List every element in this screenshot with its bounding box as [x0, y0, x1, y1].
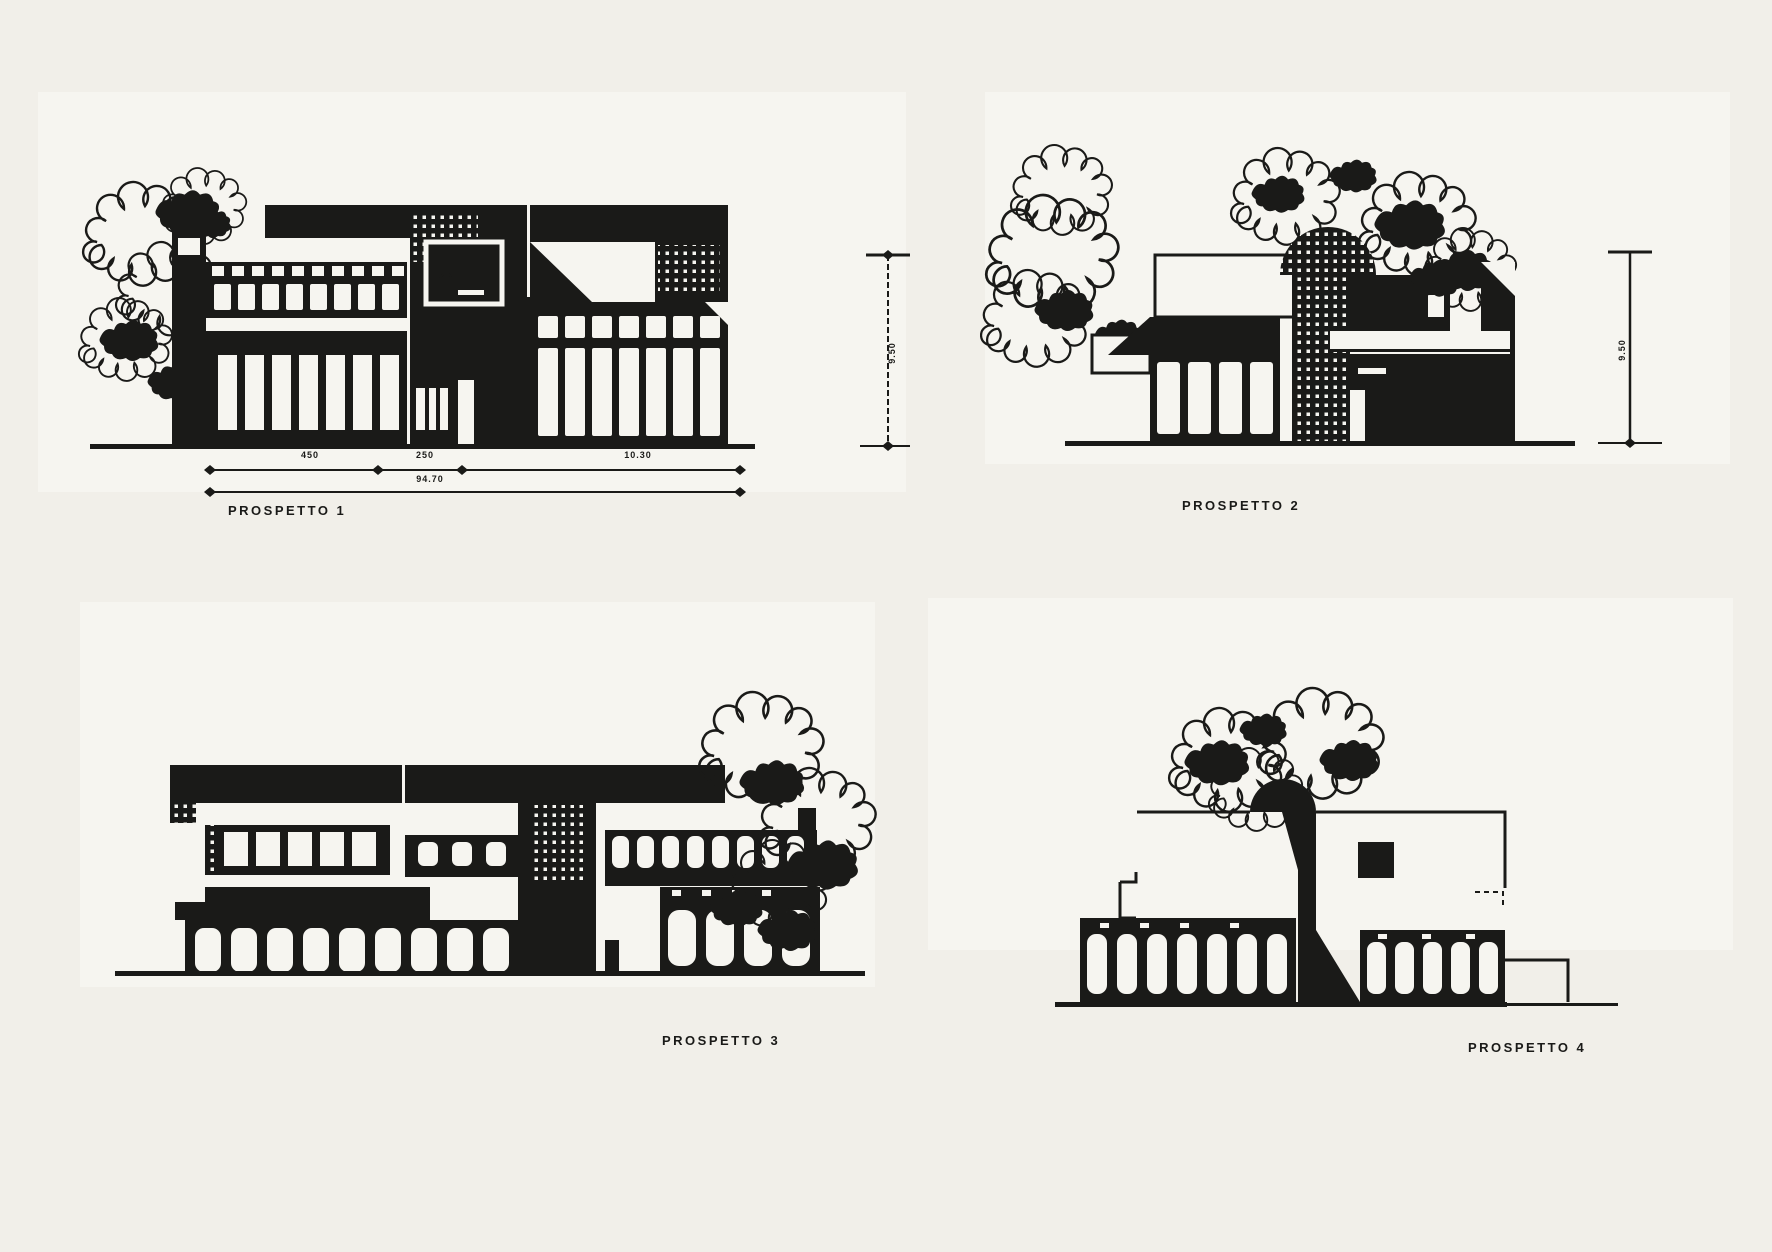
tree — [699, 692, 875, 951]
gridded-pier — [1292, 275, 1350, 443]
prospetto-2-elevation-drawing — [980, 140, 1680, 500]
building-silhouette — [170, 765, 820, 975]
diagonal-ramp — [1316, 930, 1360, 1002]
prospetto-4-label: PROSPETTO 4 — [1468, 1040, 1586, 1055]
building-silhouette — [1080, 779, 1568, 1002]
drawing-sheet: PROSPETTO 1 PROSPETTO 2 PROSPETTO 3 PROS… — [0, 0, 1772, 1252]
prospetto-3-elevation-drawing — [100, 640, 880, 1000]
dimension-segment-2: 250 — [403, 450, 447, 460]
sloped-roof-band — [1150, 317, 1280, 355]
prospetto-2-label: PROSPETTO 2 — [1182, 498, 1300, 513]
ground-line — [90, 444, 755, 449]
side-wall-outline — [1505, 960, 1568, 1002]
dimension-segment-1: 450 — [288, 450, 332, 460]
gridded-screen — [658, 245, 720, 293]
ground-line — [1507, 1003, 1618, 1006]
building-silhouette — [172, 205, 728, 444]
ground-line — [115, 971, 865, 976]
stepped-slab — [175, 887, 430, 920]
dimension-total: 94.70 — [398, 474, 462, 484]
roof-band — [170, 765, 725, 803]
gridded-screen — [530, 805, 588, 880]
stair-tower — [172, 230, 206, 444]
prospetto-1-elevation-drawing — [60, 150, 910, 510]
dimension-line-horizontal — [204, 465, 746, 497]
dimension-segment-3: 10.30 — [606, 450, 670, 460]
square-window — [1358, 842, 1394, 878]
prospetto-3-label: PROSPETTO 3 — [662, 1033, 780, 1048]
prospetto-4-elevation-drawing — [930, 630, 1650, 1030]
dimension-line-vertical — [860, 250, 910, 451]
dimension-line-vertical — [1598, 252, 1662, 448]
ground-line — [1065, 441, 1575, 446]
dimension-height-2: 9.50 — [1617, 328, 1627, 372]
ground-line — [1055, 1002, 1507, 1007]
dimension-height-1: 9.50 — [887, 331, 897, 375]
parapet-wall — [1137, 812, 1505, 888]
prospetto-1-label: PROSPETTO 1 — [228, 503, 346, 518]
